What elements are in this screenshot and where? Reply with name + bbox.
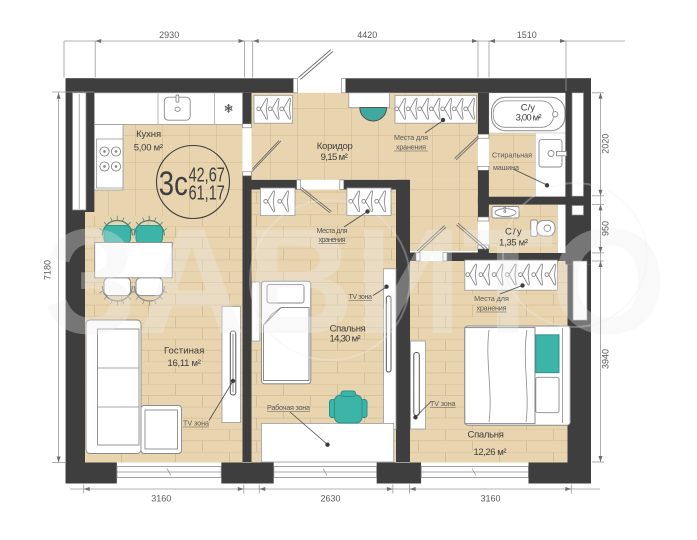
svg-text:7180: 7180 [43, 260, 53, 280]
svg-text:2630: 2630 [320, 494, 340, 504]
svg-text:хранения: хранения [319, 235, 346, 244]
svg-text:Коридор: Коридор [317, 141, 353, 152]
svg-text:хранения: хранения [477, 304, 507, 313]
svg-text:3,00 м²: 3,00 м² [516, 113, 542, 124]
svg-text:Места для: Места для [394, 133, 428, 142]
svg-text:3160: 3160 [151, 494, 171, 504]
svg-text:Рабочая зона: Рабочая зона [267, 403, 310, 412]
svg-text:5,00 м²: 5,00 м² [134, 143, 163, 154]
svg-text:Гостиная: Гостиная [164, 346, 205, 357]
svg-text:Места для: Места для [317, 226, 348, 235]
svg-text:3с: 3с [159, 165, 188, 203]
svg-text:TV зона: TV зона [430, 399, 456, 408]
svg-text:14,30 м²: 14,30 м² [330, 334, 361, 345]
svg-text:Стиральная: Стиральная [492, 151, 532, 160]
svg-text:1510: 1510 [517, 30, 537, 40]
svg-text:Кухня: Кухня [136, 129, 161, 140]
svg-text:950: 950 [601, 221, 611, 236]
svg-text:12,26 м²: 12,26 м² [474, 447, 507, 458]
svg-text:Места для: Места для [474, 294, 509, 303]
svg-text:9,15 м²: 9,15 м² [321, 152, 348, 163]
svg-text:машина: машина [493, 163, 519, 172]
svg-text:Спальня: Спальня [468, 429, 504, 440]
svg-text:TV зона: TV зона [183, 419, 209, 428]
svg-text:3160: 3160 [480, 494, 500, 504]
svg-text:С/у: С/у [505, 227, 522, 238]
svg-text:61,17: 61,17 [189, 183, 225, 205]
svg-text:4420: 4420 [357, 30, 377, 40]
svg-text:3940: 3940 [601, 349, 611, 369]
svg-text:TV зона: TV зона [348, 292, 372, 301]
svg-text:2020: 2020 [601, 134, 611, 154]
svg-text:16,11 м²: 16,11 м² [167, 358, 201, 369]
svg-text:1,35 м²: 1,35 м² [499, 237, 528, 248]
svg-text:2930: 2930 [159, 30, 179, 40]
svg-text:хранения: хранения [396, 143, 426, 152]
